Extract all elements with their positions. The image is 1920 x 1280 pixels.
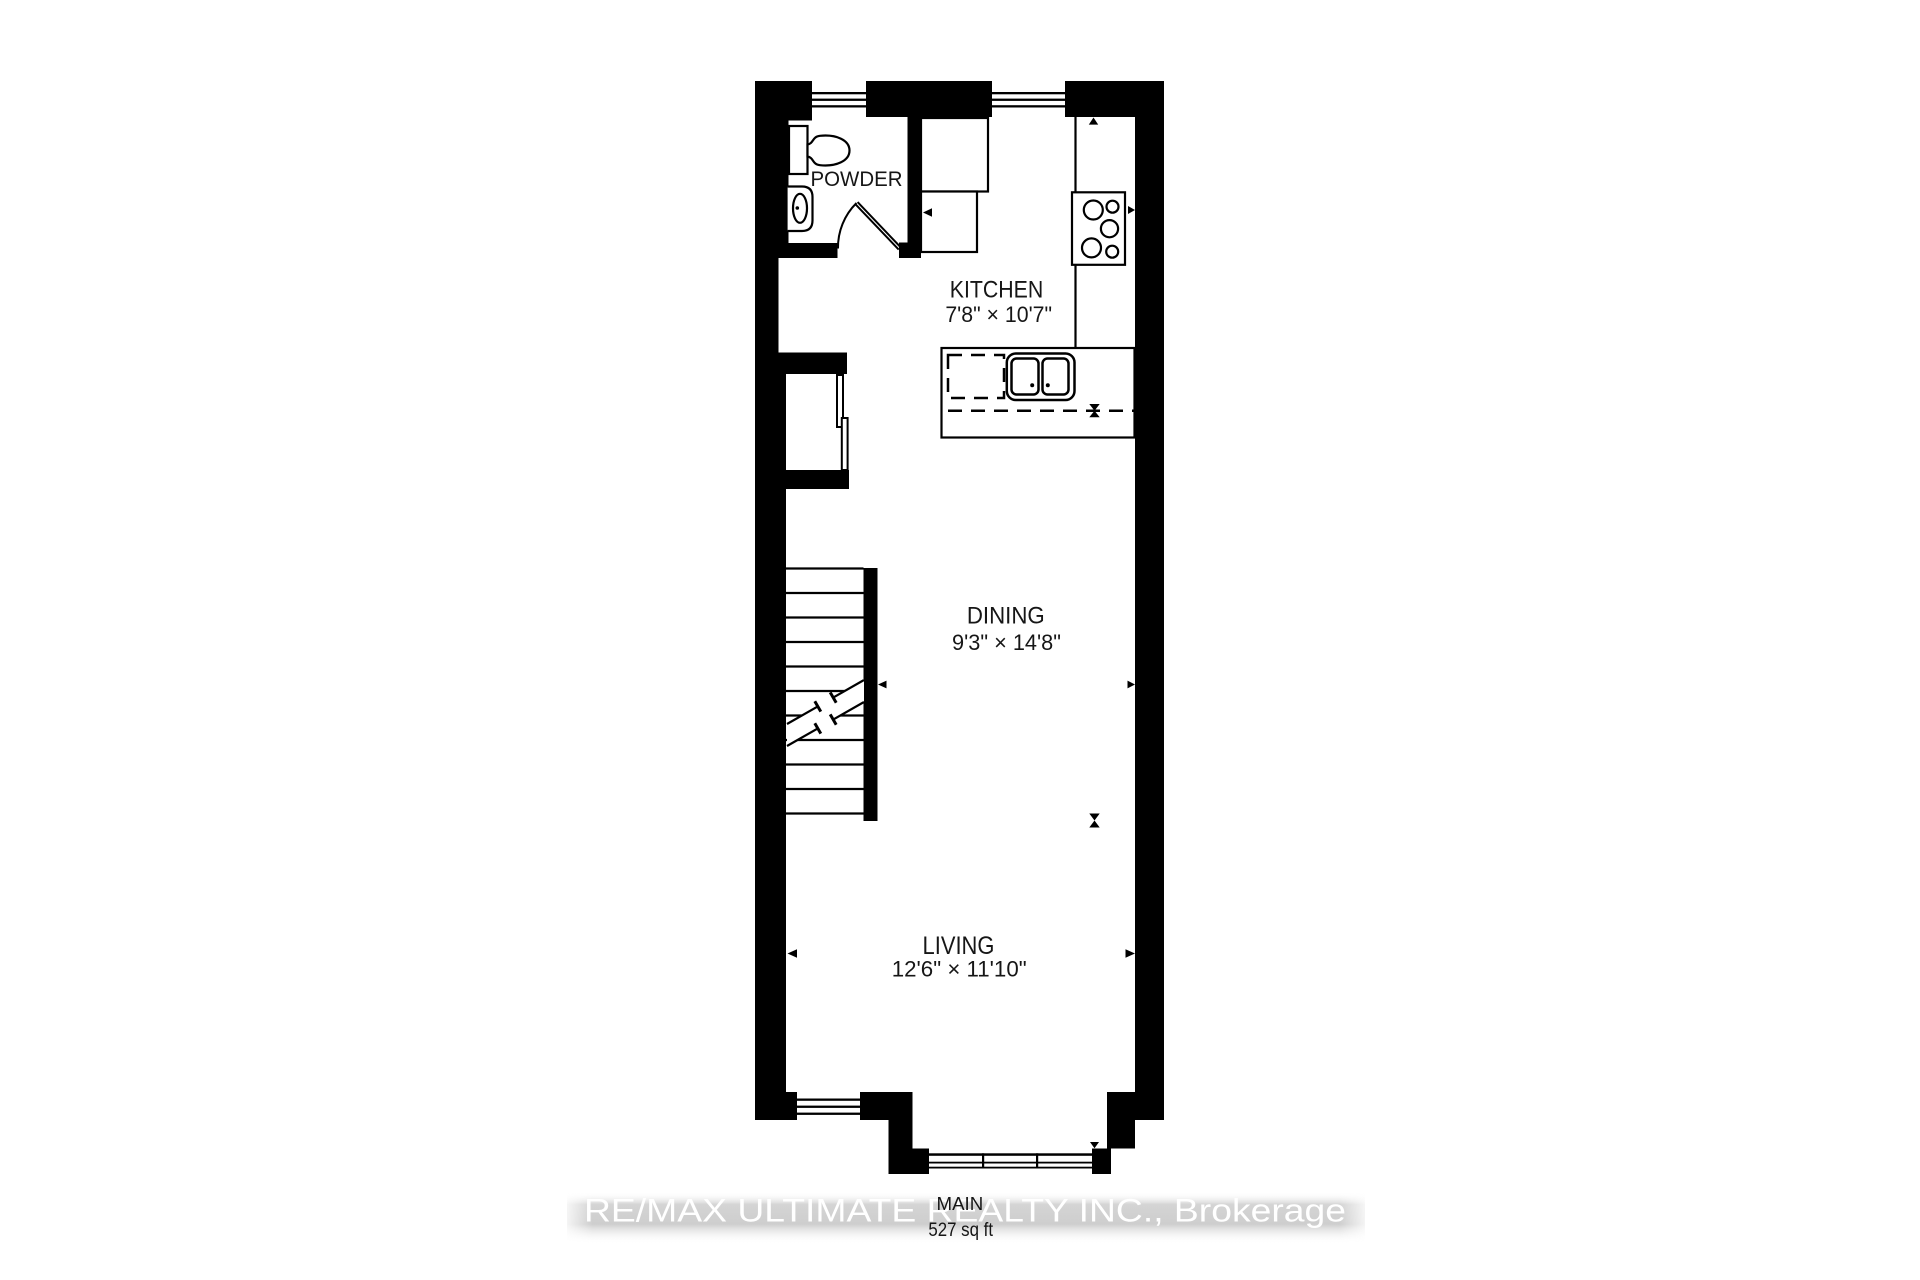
svg-text:DINING: DINING: [967, 602, 1045, 629]
svg-text:9'3" × 14'8": 9'3" × 14'8": [952, 630, 1061, 655]
svg-text:7'8" × 10'7": 7'8" × 10'7": [945, 302, 1052, 327]
svg-text:12'6" × 11'10": 12'6" × 11'10": [892, 957, 1027, 982]
svg-text:527 sq ft: 527 sq ft: [928, 1220, 993, 1241]
svg-text:KITCHEN: KITCHEN: [950, 277, 1044, 304]
svg-text:MAIN: MAIN: [937, 1194, 984, 1215]
svg-text:POWDER: POWDER: [811, 168, 903, 191]
